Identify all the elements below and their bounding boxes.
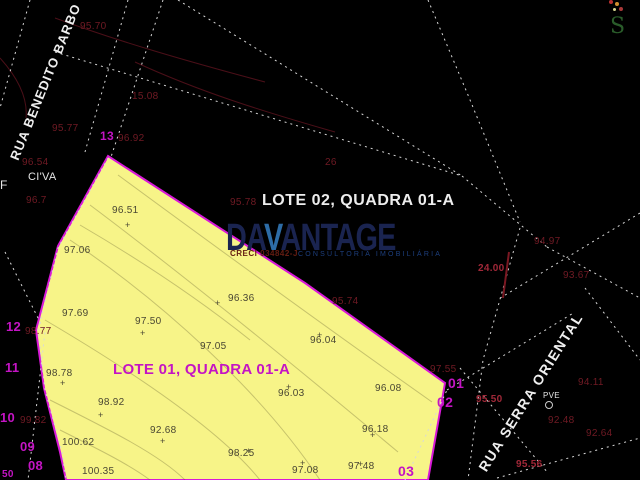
- elevation-label: 93.67: [563, 271, 590, 281]
- lot-number-label: 50: [2, 470, 14, 480]
- lot-number-label: 08: [28, 459, 43, 472]
- lot-number-label: 10: [0, 411, 15, 424]
- elevation-label: 97.05: [200, 342, 227, 352]
- boundary-dotted-line: [497, 438, 640, 478]
- boundary-dotted-line: [55, 52, 462, 176]
- elevation-label: 97.55: [430, 365, 457, 375]
- annotation-label: F: [0, 179, 8, 191]
- watermark-tagline: CONSULTORIA IMOBILIÁRIA: [298, 251, 442, 258]
- elevation-label: 94.11: [578, 378, 604, 388]
- elevation-label: 96.36: [228, 294, 255, 304]
- ring-symbol: [545, 401, 553, 409]
- elevation-label: 92.68: [150, 426, 177, 436]
- elevation-label: 96.03: [278, 389, 305, 399]
- elevation-label: 96.18: [362, 425, 389, 435]
- boundary-dotted-line: [585, 288, 640, 360]
- red-boundary-segment: [503, 252, 509, 298]
- elevation-label: 96.7: [26, 196, 47, 206]
- elevation-label: 97.06: [64, 246, 91, 256]
- survey-point-marker: +: [246, 447, 251, 456]
- boundary-dotted-line: [428, 0, 520, 222]
- survey-point-marker: +: [140, 329, 145, 338]
- map-dot: [613, 8, 616, 11]
- elevation-label: 24.00: [478, 264, 505, 274]
- survey-point-marker: +: [370, 431, 375, 440]
- elevation-label: 26: [325, 158, 337, 168]
- survey-point-marker: +: [215, 299, 220, 308]
- lot-number-label: 09: [20, 440, 35, 453]
- boundary-dotted-line: [178, 0, 462, 176]
- cadastral-survey-map: RUA BENEDITO BARBO RUA SERRA ORIENTAL LO…: [0, 0, 640, 480]
- elevation-label: 95.74: [332, 297, 359, 307]
- survey-point-marker: +: [125, 221, 130, 230]
- elevation-label: 99.82: [20, 416, 47, 426]
- elevation-label: 98.92: [98, 398, 125, 408]
- map-dot: [609, 0, 613, 4]
- lot-number-label: 03: [398, 464, 414, 478]
- survey-point-marker: +: [160, 437, 165, 446]
- elevation-label: 95.77: [52, 124, 79, 134]
- watermark-creci: CRECI 034842-J: [230, 249, 298, 258]
- boundary-dotted-line: [497, 213, 640, 300]
- lot-number-label: 13: [100, 130, 114, 142]
- watermark: DAVANTAGE CRECI 034842-J CONSULTORIA IMO…: [226, 219, 436, 257]
- survey-point-marker: +: [98, 411, 103, 420]
- elevation-label: 97.69: [62, 309, 89, 319]
- elevation-label: 96.51: [112, 206, 139, 216]
- elevation-label: 96.54: [22, 158, 49, 168]
- elevation-label: 100.62: [62, 438, 94, 448]
- survey-point-marker: +: [60, 379, 65, 388]
- elevation-label: 96.92: [118, 134, 145, 144]
- elevation-label: 15.08: [132, 92, 159, 102]
- elevation-label: 97.08: [292, 466, 319, 476]
- compass-letter: S: [610, 14, 625, 39]
- elevation-label: 98.77: [25, 327, 52, 337]
- lot-01-label: LOTE 01, QUADRA 01-A: [113, 361, 290, 378]
- lot-02-label: LOTE 02, QUADRA 01-A: [262, 192, 455, 210]
- boundary-dotted-line: [0, 0, 30, 108]
- elevation-label: 92.48: [548, 416, 575, 426]
- annotation-label: CI'VA: [28, 172, 56, 183]
- lot-number-label: 11: [5, 361, 19, 374]
- boundary-dotted-line: [547, 247, 640, 298]
- elevation-label: 92.64: [586, 429, 613, 439]
- elevation-label: 95.56: [516, 460, 543, 470]
- elevation-label: 96.04: [310, 336, 337, 346]
- survey-point-marker: +: [358, 460, 363, 469]
- map-dot: [619, 7, 623, 11]
- elevation-label: 96.08: [375, 384, 402, 394]
- map-dot: [615, 2, 619, 6]
- survey-point-marker: +: [286, 383, 291, 392]
- lot-number-label: 02: [437, 395, 453, 409]
- elevation-label: 100.35: [82, 467, 114, 477]
- elevation-label: 95.78: [230, 198, 257, 208]
- survey-point-marker: +: [300, 459, 305, 468]
- elevation-label: 95.50: [476, 395, 503, 405]
- lot-number-label: 12: [6, 320, 21, 333]
- annotation-label: PVE: [543, 392, 560, 400]
- elevation-label: 97.50: [135, 317, 162, 327]
- lot-number-label: 01: [448, 376, 464, 390]
- elevation-label: 95.70: [80, 22, 107, 32]
- elevation-label: 94.97: [534, 237, 561, 247]
- survey-point-marker: +: [317, 331, 322, 340]
